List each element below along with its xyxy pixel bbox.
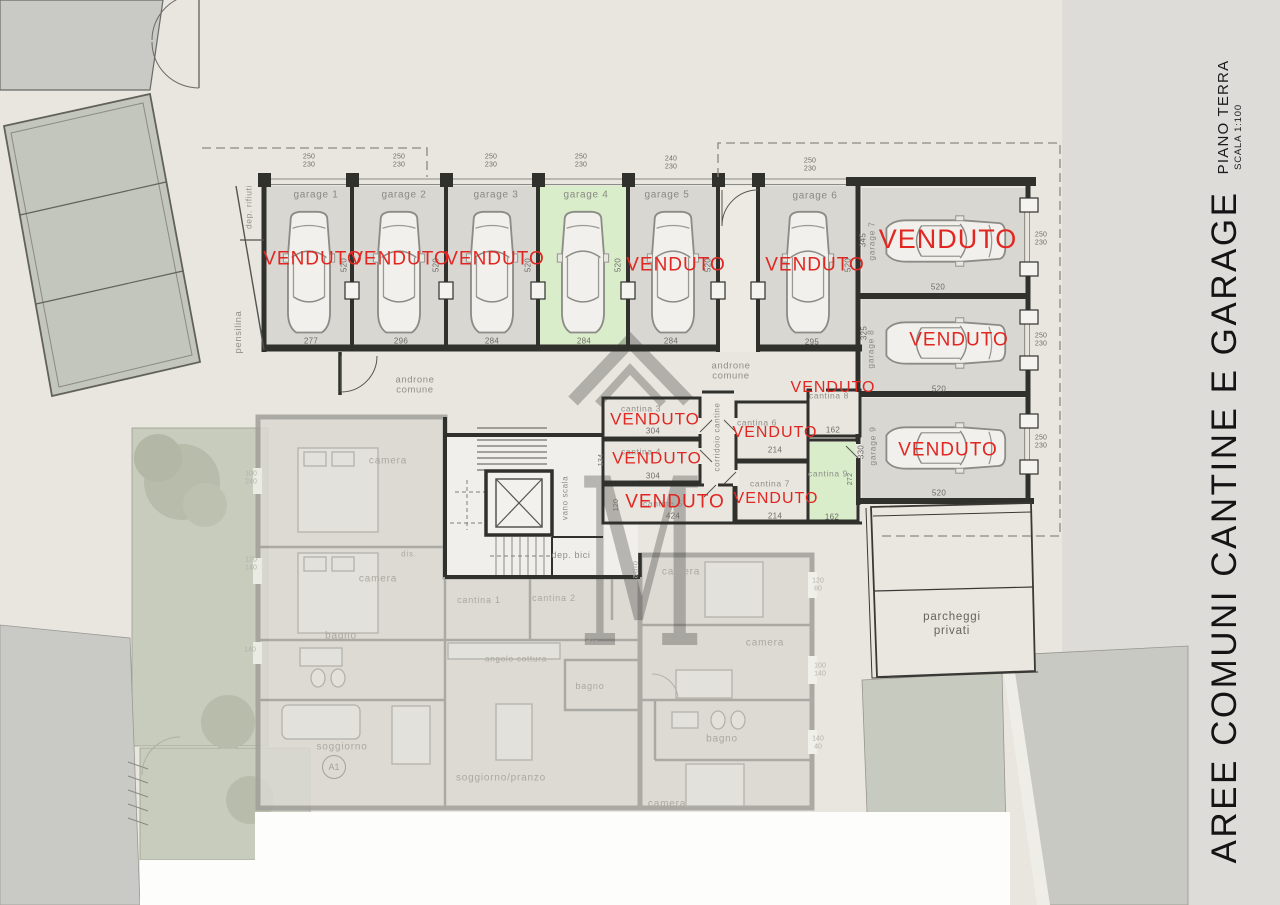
room-camera-5: camera (648, 799, 686, 810)
room-cab-armadio: cab. armadio (632, 560, 641, 616)
room-bagno-3: bagno (706, 734, 738, 745)
garage-6-door-dim: 250 230 (804, 158, 816, 173)
sold-badge-cantina-8: VENDUTO (791, 379, 876, 397)
pensilina-label: pensilina (234, 311, 244, 354)
garage-8-door-dim: 250 230 (1035, 333, 1047, 348)
sold-badge-garage-9: VENDUTO (898, 441, 998, 462)
drawing-title: AREE COMUNI CANTINE E GARAGE (1206, 191, 1245, 864)
cantina-1-label: cantina 1 (457, 596, 501, 606)
sold-badge-cantina-7: VENDUTO (734, 490, 819, 508)
garage-7-width-dim: 520 (931, 284, 945, 293)
window-dim-4: 120 60 (812, 578, 824, 593)
cantina-4-width-dim: 304 (646, 473, 660, 482)
garage-2-door-dim: 250 230 (393, 154, 405, 169)
parcheggi-privati-label: parcheggi privati (923, 610, 981, 638)
cantina-9-label: cantina 9 (808, 469, 848, 478)
androne-comune-label-left: androne comune (395, 376, 434, 397)
room-camera-2: camera (359, 574, 397, 585)
sold-badge-garage-1: VENDUTO (263, 250, 363, 271)
garage-7-door-dim: 250 230 (1035, 232, 1047, 247)
garage-2-label: garage 2 (381, 190, 426, 201)
cantina-2-label: cantina 2 (532, 594, 576, 604)
cantina-8-width-dim: 162 (826, 427, 840, 436)
dep-bici-label: dep. bici (552, 551, 591, 561)
garage-8-width-dim: 520 (932, 386, 946, 395)
window-dim-2: 120 140 (245, 557, 257, 572)
garage-7-depth-dim: 345 (860, 233, 869, 247)
room-soggiorno: soggiorno (316, 742, 367, 753)
sold-badge-cantina-4: VENDUTO (612, 450, 702, 469)
cantina-7-width-dim: 214 (768, 513, 782, 522)
room-dis-1: dis. (401, 551, 417, 560)
window-dim-3: 140 (244, 646, 256, 654)
garage-5-door-dim: 240 230 (665, 156, 677, 171)
window-dim-6: 140 40 (812, 736, 824, 751)
garage-6-label: garage 6 (792, 191, 837, 202)
room-bagno-2: bagno (575, 682, 604, 692)
room-dis-2: dis. (586, 639, 602, 648)
garage-9-width-dim: 520 (932, 490, 946, 499)
androne-comune-label-right: androne comune (711, 362, 750, 383)
room-bagno-1: bagno (325, 631, 357, 642)
svg-text:M: M (578, 429, 704, 700)
cantina-6-width-dim: 214 (768, 447, 782, 456)
sold-badge-garage-3: VENDUTO (445, 250, 545, 271)
garage-7-label: garage 7 (867, 221, 876, 260)
garage-3-width-dim: 284 (485, 338, 499, 347)
floor-plan-page: M garage 1 garage 2 garage 3 garage 4 ga… (0, 0, 1280, 905)
cantina-5-width-dim: 424 (666, 513, 680, 522)
garage-3-label: garage 3 (473, 190, 518, 201)
room-angolo-cottura: angolo cottura (485, 656, 547, 665)
sold-badge-garage-5: VENDUTO (626, 256, 726, 277)
cantina-5-depth-dim: 120 (613, 499, 621, 512)
garage-4-width-dim: 284 (577, 338, 591, 347)
private-parking (866, 503, 1038, 678)
corridoio-cantine-label: corridoio cantine (714, 403, 723, 472)
garage-2-width-dim: 296 (394, 338, 408, 347)
garage-9-door-dim: 250 230 (1035, 435, 1047, 450)
drawing-scale-label: SCALA 1:100 (1234, 104, 1244, 170)
plan-cutoff (255, 812, 1010, 905)
sold-badge-cantina-5: VENDUTO (625, 493, 725, 514)
garage-4-door-dim: 250 230 (575, 154, 587, 169)
sold-badge-cantina-6: VENDUTO (733, 424, 818, 442)
room-soggiorno-pranzo: soggiorno/pranzo (456, 773, 546, 784)
window-dim-1: 100 240 (245, 471, 257, 486)
sold-badge-garage-2: VENDUTO (350, 250, 450, 271)
dep-rifiuti-label: dep. rifiuti (244, 185, 253, 229)
garage-9-label: garage 9 (868, 426, 877, 465)
garage-1-door-dim: 250 230 (303, 154, 315, 169)
garage-9-depth-dim: 330 (858, 445, 867, 459)
sold-badge-cantina-3: VENDUTO (610, 411, 700, 430)
garage-5-label: garage 5 (644, 190, 689, 201)
drawing-floor-label: PIANO TERRA (1216, 60, 1233, 175)
sold-badge-garage-6: VENDUTO (765, 256, 865, 277)
garage-4-depth-dim: 520 (615, 258, 624, 272)
unit-a1-badge: A1 (322, 755, 346, 779)
room-camera-4: camera (746, 638, 784, 649)
cantina-9-width-dim: 162 (825, 514, 839, 523)
cantina-9-depth-dim: 272 (847, 473, 855, 486)
window-dim-5: 100 140 (814, 663, 826, 678)
sold-badge-garage-8: VENDUTO (909, 331, 1009, 352)
room-camera-1: camera (369, 456, 407, 467)
neighbor-structure (0, 0, 163, 90)
cantina-4-depth-dim: 134 (598, 454, 606, 467)
garage-3-door-dim: 250 230 (485, 154, 497, 169)
cantina-7-label: cantina 7 (750, 479, 790, 488)
garage-4-label: garage 4 (563, 190, 608, 201)
garage-1-width-dim: 277 (304, 338, 318, 347)
garage-8-depth-dim: 325 (861, 326, 870, 340)
garage-5-width-dim: 284 (664, 338, 678, 347)
room-camera-3: camera (662, 567, 700, 578)
garage-1-label: garage 1 (293, 190, 338, 201)
vano-scala-label: vano scala (562, 476, 571, 520)
garage-6-width-dim: 295 (805, 339, 819, 348)
sold-badge-garage-7: VENDUTO (879, 225, 1018, 255)
